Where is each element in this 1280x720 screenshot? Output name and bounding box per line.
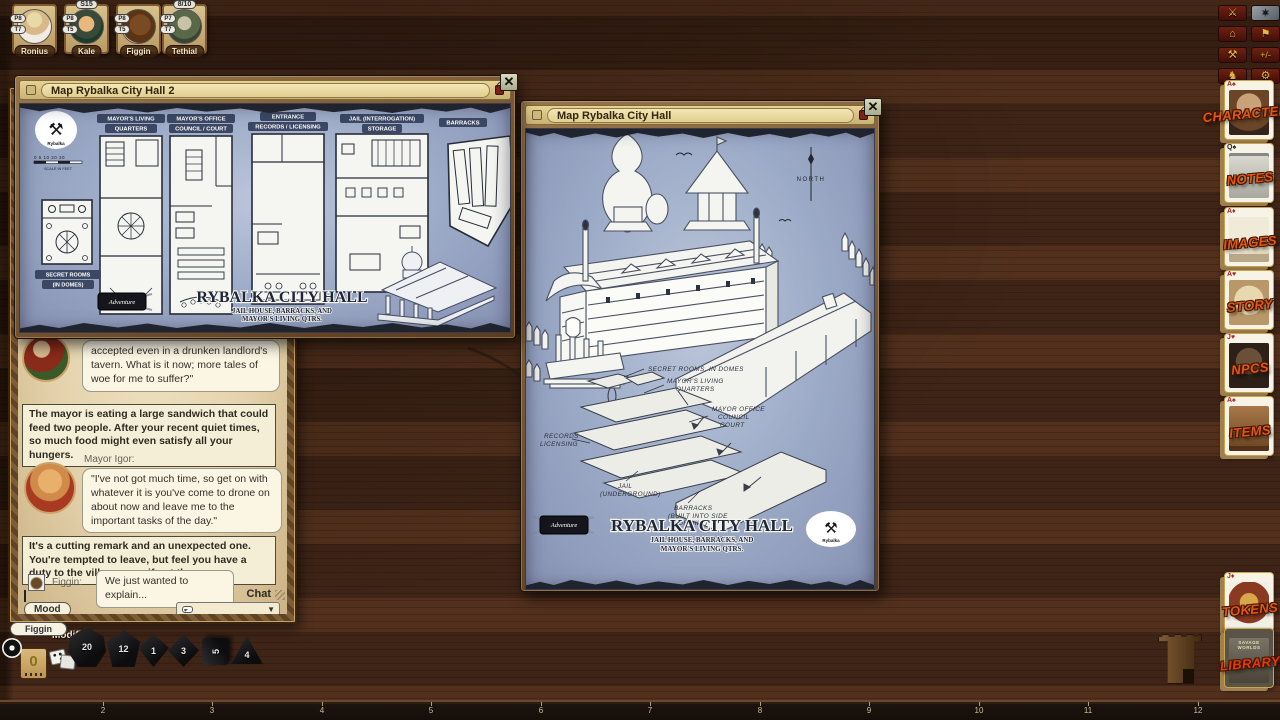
cupola <box>614 207 642 222</box>
portrait-figgin[interactable]: P8 T5 Figgin <box>116 4 161 54</box>
plan3-label-2: RECORDS / LICENSING <box>255 125 321 131</box>
annotation-office-2: COUNCIL <box>718 414 750 421</box>
floor-plans-illustration: ⚒ Rybalka 0 5 10 20 30 SCALE IN FEET MAY… <box>20 104 510 332</box>
secret-label-1: SECRET ROOMS <box>46 273 91 279</box>
ruler-number: 3 <box>197 706 227 715</box>
tethial-badge-toughness: T7 <box>160 25 176 34</box>
map-subtitle-2: MAYOR'S LIVING QTRS. <box>242 316 322 323</box>
chat-mode-label: Chat <box>247 588 271 600</box>
chat-channel-dropdown[interactable]: ▼ <box>176 602 280 614</box>
map-subtitle-1: JAIL HOUSE, BARRACKS, AND <box>232 308 332 315</box>
plan-mayors-office <box>170 136 232 314</box>
tethial-badge-parry: P7 <box>160 14 176 23</box>
die-d8[interactable]: 3 <box>168 634 199 667</box>
annotation-living-2: QUARTERS <box>676 386 715 393</box>
adventure-logo: Adventure <box>550 522 578 529</box>
rybalka-seal-text: Rybalka <box>822 538 840 543</box>
mayor-igor-avatar <box>24 462 76 514</box>
ruler-number: 10 <box>964 706 994 715</box>
portrait-ronius[interactable]: P8 T7 Ronius <box>12 4 57 54</box>
north-label: NORTH <box>797 177 826 183</box>
secret-label-2: (IN DOMES) <box>53 283 84 289</box>
map-title-text: RYBALKA CITY HALL <box>611 516 793 535</box>
map-subtitle-2: MAYOR'S LIVING QTRS. <box>661 545 744 553</box>
weapon-art-icon[interactable]: ✶ <box>1251 5 1280 21</box>
mood-button[interactable]: Mood <box>24 602 71 614</box>
ruler-number: 8 <box>745 706 775 715</box>
ruler-number: 11 <box>1073 706 1103 715</box>
chevron-down-icon: ▼ <box>267 605 275 614</box>
resize-grip[interactable] <box>275 590 285 600</box>
card-pip: Q♠ <box>1227 144 1236 151</box>
sidebar-item-tokens[interactable]: J♦ TOKENS <box>1224 572 1274 632</box>
scale-caption: SCALE IN FEET <box>44 167 73 171</box>
plan2-label-1: MAYOR'S OFFICE <box>176 117 225 123</box>
ruler-number: 4 <box>307 706 337 715</box>
plan1-label-2: QUARTERS <box>115 127 148 133</box>
card-pip: A♠ <box>1227 81 1236 88</box>
forge-icon[interactable]: ⚒ <box>1218 47 1247 63</box>
annotation-records-1: RECORDS - <box>544 433 583 440</box>
plan3-label-1: ENTRANCE <box>272 115 304 121</box>
annotation-barracks-1: BARRACKS <box>674 505 713 512</box>
wall-end <box>766 261 778 337</box>
annotation-jail-1: JAIL <box>617 483 632 490</box>
active-character-tab[interactable]: Figgin <box>10 622 67 636</box>
scale-ticks: 0 5 10 20 30 <box>34 155 65 160</box>
portrait-tethial[interactable]: 8/10 P7 T7 Tethial <box>162 4 207 54</box>
die-d12[interactable]: 12 <box>106 630 141 667</box>
plan-barracks <box>448 136 510 246</box>
corner-tower <box>684 137 750 230</box>
figgin-name: Figgin <box>120 45 158 58</box>
window-pin-button[interactable] <box>532 110 542 120</box>
ruler-number: 9 <box>854 706 884 715</box>
sidebar-item-library[interactable]: SAVAGE WORLDS LIBRARY <box>1224 628 1274 688</box>
speech-bubble-icon <box>182 606 193 613</box>
plan1-label-1: MAYOR'S LIVING <box>107 117 155 123</box>
kale-badge-parry: P8 <box>62 14 78 23</box>
card-pip: A♥ <box>1227 271 1236 278</box>
map-canvas[interactable]: NORTH <box>525 128 875 590</box>
map-footer: Adventure RYBALKA CITY HALL JAIL HOUSE, … <box>534 511 856 553</box>
chat-input-caret[interactable] <box>24 590 26 602</box>
cupola-roof <box>604 222 652 231</box>
ruler-number: 12 <box>1183 706 1213 715</box>
chat-message: accepted even in a drunken landlord's ta… <box>82 340 280 392</box>
ruler-number: 5 <box>416 706 446 715</box>
ronius-badge-parry: P8 <box>10 14 26 23</box>
kale-name: Kale <box>71 45 102 58</box>
tethial-top-badge: 8/10 <box>173 0 197 9</box>
sidebar-item-characters[interactable]: A♠ CHARACTERS <box>1224 80 1274 140</box>
sidebar-item-images[interactable]: A♦ IMAGES <box>1224 207 1274 267</box>
figgin-mini-avatar <box>28 574 45 591</box>
plan4-label-1: JAIL (INTERROGATION) <box>349 117 415 123</box>
modifier-value-box[interactable]: 0 <box>20 648 47 679</box>
encounter-icon[interactable]: ⚔ <box>1218 5 1247 21</box>
plan4-label-2: STORAGE <box>368 127 397 133</box>
hammers-icon: ⚒ <box>48 120 63 139</box>
close-icon[interactable]: ✕ <box>500 73 518 91</box>
plan-entrance-records <box>252 134 324 304</box>
plan5-label-1: BARRACKS <box>446 121 479 127</box>
map-window-rybalka-city-hall-2[interactable]: ✕ Map Rybalka City Hall 2 ⚒ Rybalka 0 5 … <box>14 75 516 339</box>
rybalka-seal-text: Rybalka <box>47 141 65 146</box>
ruler-number: 7 <box>635 706 665 715</box>
kale-top-badge: S15 <box>75 0 97 9</box>
white-dice-icon[interactable] <box>49 648 68 665</box>
window-pin-button[interactable] <box>26 85 36 95</box>
die-d4[interactable]: 4 <box>231 635 263 666</box>
card-pip: J♥ <box>1227 334 1235 341</box>
figgin-badge-toughness: T5 <box>114 25 130 34</box>
north-marker: NORTH <box>797 147 826 201</box>
table-ruler: 2 3 4 5 6 7 8 9 10 11 12 <box>0 700 1280 720</box>
sidebar-item-notes[interactable]: Q♠ NOTES <box>1224 143 1274 203</box>
building-sketch <box>526 129 874 419</box>
card-pip: A♠ <box>1227 397 1236 404</box>
annotation-office-3: COURT <box>720 422 745 429</box>
sidebar-item-items[interactable]: A♠ ITEMS <box>1224 396 1274 456</box>
city-hall-illustration: NORTH <box>526 129 874 589</box>
library-cover-text: SAVAGE WORLDS <box>1231 640 1267 650</box>
annotation-living-1: MAYOR'S LIVING <box>667 378 724 385</box>
die-d10[interactable]: 1 <box>138 634 169 667</box>
die-d6[interactable]: 5 <box>202 638 229 665</box>
sidebar-item-npcs[interactable]: J♥ NPCS <box>1224 333 1274 393</box>
plan-mayors-living <box>100 136 162 314</box>
small-dome <box>646 194 668 224</box>
window-title: Map Rybalka City Hall 2 <box>41 83 490 98</box>
annotation-jail-2: (UNDERGROUND) <box>600 491 661 498</box>
secret-rooms-label: SECRET ROOMS (IN DOMES) <box>35 270 101 289</box>
narration-box: The mayor is eating a large sandwich tha… <box>22 404 276 467</box>
modifiers-icon[interactable]: +/- <box>1251 47 1280 63</box>
shelter-icon[interactable]: ⌂ <box>1218 26 1247 42</box>
plan2-label-2: COUNCIL / COURT <box>175 127 227 133</box>
target-icon[interactable] <box>2 638 22 658</box>
close-icon[interactable]: ✕ <box>864 98 882 116</box>
flag-icon[interactable]: ⚑ <box>1251 26 1280 42</box>
dice-tower[interactable] <box>1158 634 1202 684</box>
fantasy-grounds-tabletop: { "party": { "members": [ { "name": "Ron… <box>0 0 1280 720</box>
plan-labels: MAYOR'S LIVING QUARTERS MAYOR'S OFFICE C… <box>97 112 487 133</box>
map-title-text: RYBALKA CITY HALL <box>196 289 367 306</box>
hammers-icon: ⚒ <box>824 520 837 537</box>
speaker-name: Figgin: <box>52 577 82 588</box>
tethial-name: Tethial <box>165 45 204 58</box>
card-pip: J♦ <box>1227 573 1234 580</box>
annotation-office-1: MAYOR OFFICE <box>712 406 765 413</box>
map-window-rybalka-city-hall[interactable]: ✕ Map Rybalka City Hall <box>520 100 880 592</box>
ruler-number: 2 <box>88 706 118 715</box>
window-titlebar[interactable]: Map Rybalka City Hall <box>525 105 875 125</box>
scale-bar: 0 5 10 20 30 SCALE IN FEET <box>34 155 82 171</box>
sidebar-item-story[interactable]: A♥ STORY <box>1224 270 1274 330</box>
adventure-logo: Adventure <box>108 299 136 306</box>
annotation-records-2: LICENSING <box>540 441 578 448</box>
window-titlebar[interactable]: Map Rybalka City Hall 2 <box>19 80 511 100</box>
map-canvas[interactable]: ⚒ Rybalka 0 5 10 20 30 SCALE IN FEET MAY… <box>19 103 511 333</box>
window-title: Map Rybalka City Hall <box>547 108 854 123</box>
portrait-kale[interactable]: S15 P8 T5 Kale <box>64 4 109 54</box>
kale-badge-toughness: T5 <box>62 25 78 34</box>
chat-message: "I've not got much time, so get on with … <box>82 468 282 533</box>
speaker-avatar <box>22 334 70 382</box>
rybalka-seal: ⚒ Rybalka <box>35 111 77 149</box>
map-subtitle-1: JAIL HOUSE, BARRACKS, AND <box>651 536 754 544</box>
ruler-number: 6 <box>526 706 556 715</box>
speaker-name: Mayor Igor: <box>84 454 135 465</box>
annotation-secret-rooms: SECRET ROOMS, IN DOMES <box>648 366 744 373</box>
card-pip: A♦ <box>1227 208 1236 215</box>
plan-secret-rooms <box>42 200 92 264</box>
figgin-badge-parry: P8 <box>114 14 130 23</box>
ronius-name: Ronius <box>14 45 55 58</box>
ronius-badge-toughness: T7 <box>10 25 26 34</box>
picket-fence-left <box>526 322 548 381</box>
